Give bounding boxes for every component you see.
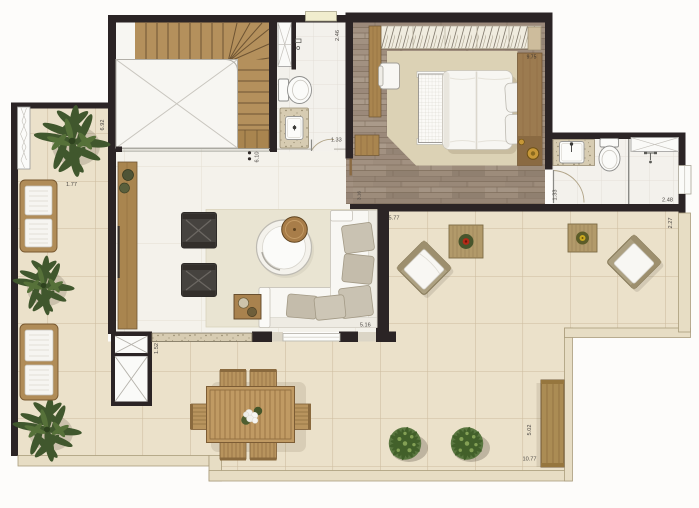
svg-text:5.02: 5.02 xyxy=(527,425,533,436)
svg-text:5.16: 5.16 xyxy=(360,323,371,329)
svg-text:1.33: 1.33 xyxy=(552,190,558,201)
svg-text:2.27: 2.27 xyxy=(668,218,674,229)
svg-text:9.75: 9.75 xyxy=(527,55,537,61)
svg-text:3.16: 3.16 xyxy=(356,191,361,200)
svg-text:6.10: 6.10 xyxy=(255,152,261,163)
svg-text:1.52: 1.52 xyxy=(154,343,160,354)
svg-text:1.33: 1.33 xyxy=(331,138,342,144)
svg-text:5.77: 5.77 xyxy=(389,216,400,222)
svg-text:10.77: 10.77 xyxy=(523,457,537,463)
svg-text:2.46: 2.46 xyxy=(335,30,341,41)
svg-text:6.92: 6.92 xyxy=(100,120,106,131)
svg-text:1.77: 1.77 xyxy=(66,182,77,188)
svg-text:2.48: 2.48 xyxy=(662,198,673,204)
